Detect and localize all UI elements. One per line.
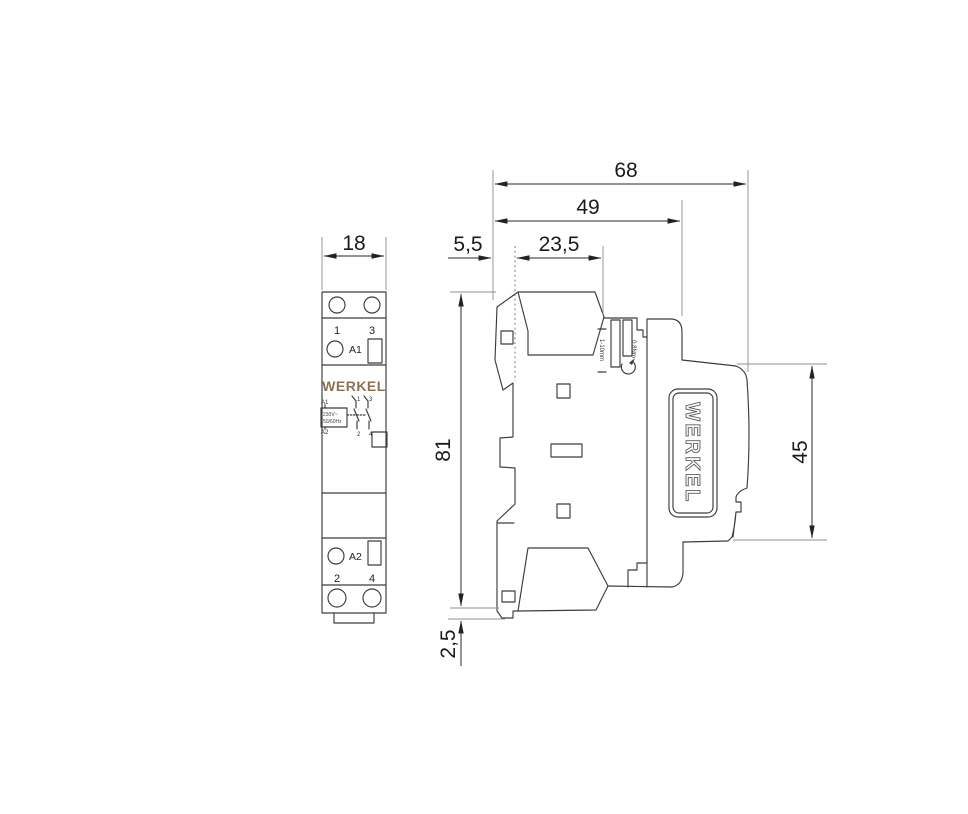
din-clip-tab-front [334,613,374,623]
side-front-hole-bottom [502,591,515,602]
indicator-window-top [368,339,382,363]
strip-length-label: 1-10mm [598,339,604,361]
dim-total-depth: 68 [614,159,637,182]
schematic-contact-1: 1 [357,397,361,403]
terminal-screw-bottom-right [363,589,381,607]
coil-label-a1: A1 [349,344,362,356]
coil-label-a2: A2 [349,551,362,563]
side-brand-plate: WERKEL [669,389,717,517]
technical-drawing: 1 3 A1 WERKEL A1 230V~ 50/60Hz A2 1 3 2 [0,0,968,814]
side-hole-middle [551,444,582,457]
dim-clip-offset: 2,5 [437,629,460,658]
dim-front-width: 18 [342,232,365,255]
schematic-contact-2: 2 [357,432,361,438]
dim-body-height: 81 [432,438,455,461]
terminal-label-3: 3 [369,325,375,337]
dim-front-section: 23,5 [539,233,580,256]
side-top-terminal-housing [518,292,604,355]
brand-logo-side: WERKEL [681,402,703,504]
schematic-pole-2 [366,401,371,429]
side-front-hole-top [501,331,513,344]
terminal-label-2: 2 [334,573,340,585]
front-view: 1 3 A1 WERKEL A1 230V~ 50/60Hz A2 1 3 2 [321,292,387,623]
terminal-label-1: 1 [334,325,340,337]
coil-terminal-a2-hole [328,548,344,564]
side-bottom-staircase [628,563,647,587]
test-button-window [372,432,387,447]
side-hole-bottom [557,504,570,518]
side-view: 1-10mm 0.8Nm WERKEL [495,292,749,618]
drawing-canvas: 1 3 A1 WERKEL A1 230V~ 50/60Hz A2 1 3 2 [0,0,968,814]
dim-din-height: 45 [789,440,812,463]
schematic-flag-1 [352,396,356,401]
terminal-screw-bottom-left [328,589,346,607]
side-bottom-terminal-housing [518,548,608,611]
wiring-schematic: A1 230V~ 50/60Hz A2 1 3 2 4 [321,396,373,438]
terminal-screw-top-right [364,297,380,313]
schematic-rating-1: 230V~ [323,412,338,418]
side-front-profile [495,292,518,618]
indicator-window-bottom [368,541,381,565]
torque-arrow-arc [621,361,635,374]
coil-terminal-a1-hole [327,341,343,357]
dimension-lines: 18 68 49 5,5 23,5 81 2,5 45 [324,159,812,666]
dim-body-depth: 49 [576,196,599,219]
schematic-flag-3 [364,396,368,401]
schematic-contact-3: 3 [369,397,373,403]
brand-logo-front: WERKEL [322,378,386,394]
torque-label: 0.8Nm [630,340,636,358]
side-bottom-rear-edge [608,541,728,587]
terminal-label-4: 4 [369,573,375,585]
schematic-rating-2: 50/60Hz [323,419,342,425]
schematic-a2: A2 [321,430,329,436]
side-clamp-slot-1 [611,320,620,367]
side-hole-top [557,384,570,398]
terminal-screw-top-left [329,297,345,313]
din-clip-hook [728,488,747,541]
dim-front-offset: 5,5 [453,233,482,256]
